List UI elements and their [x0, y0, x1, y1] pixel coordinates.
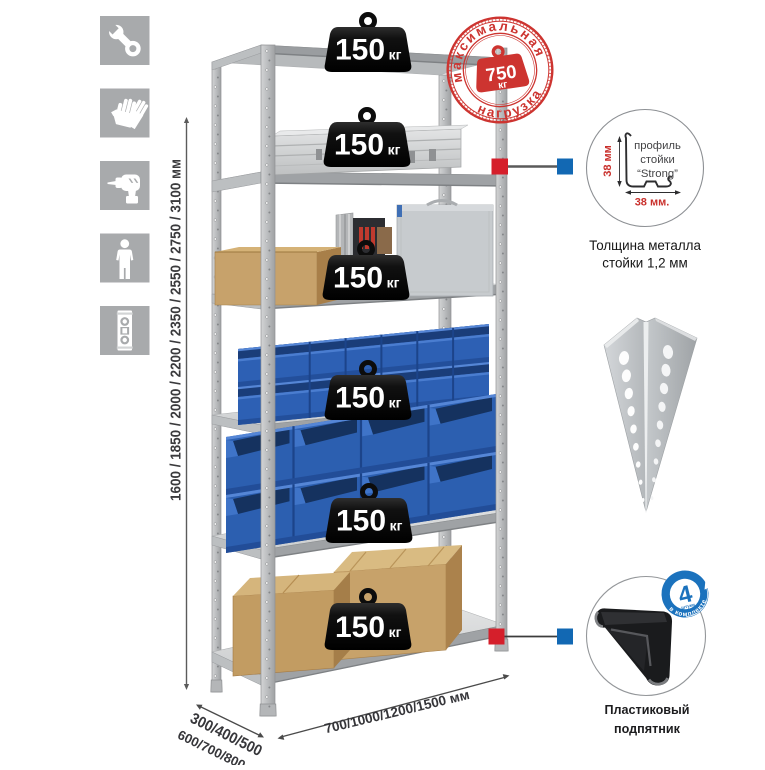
svg-text:кг: кг [390, 517, 403, 533]
svg-text:38 мм.: 38 мм. [635, 197, 670, 209]
svg-text:стойки 1,2 мм: стойки 1,2 мм [602, 256, 687, 271]
svg-text:1600 / 1850 / 2000 / 2200 / 23: 1600 / 1850 / 2000 / 2200 / 2350 / 2550 … [168, 159, 185, 501]
svg-text:Пластиковый: Пластиковый [604, 703, 689, 717]
svg-text:кг: кг [389, 46, 402, 62]
svg-text:кг: кг [389, 624, 402, 640]
svg-text:“Strong”: “Strong” [637, 168, 678, 180]
svg-text:150: 150 [333, 261, 383, 294]
svg-text:38 мм: 38 мм [602, 145, 614, 177]
svg-text:кг: кг [388, 141, 401, 157]
svg-text:150: 150 [335, 33, 385, 66]
svg-text:профиль: профиль [634, 140, 681, 152]
svg-text:Толщина металла: Толщина металла [589, 238, 701, 253]
svg-text:кг: кг [389, 394, 402, 410]
svg-text:стойки: стойки [640, 154, 675, 166]
svg-text:150: 150 [335, 611, 385, 644]
svg-text:150: 150 [335, 381, 385, 414]
svg-text:кг: кг [498, 79, 509, 91]
svg-text:150: 150 [336, 504, 386, 537]
svg-text:150: 150 [334, 128, 384, 161]
svg-text:подпятник: подпятник [614, 722, 681, 736]
svg-text:кг: кг [387, 274, 400, 290]
